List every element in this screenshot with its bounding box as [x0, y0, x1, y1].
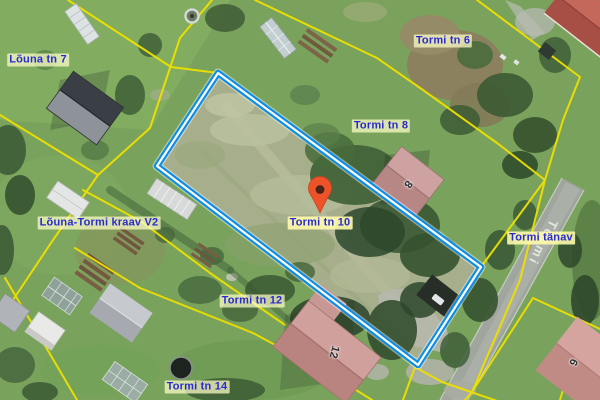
parcel-label-tormi-tn-6: Tormi tn 6	[414, 35, 472, 48]
pond	[170, 357, 192, 379]
parcel-label-tormi-tn-10: Tormi tn 10	[288, 217, 353, 230]
parcel-label-tormi-tn-14: Tormi tn 14	[165, 381, 230, 394]
parcel-label-tormi-tn-12: Tormi tn 12	[220, 295, 285, 308]
aerial-map-view[interactable]: Lõuna tn 7 Tormi tn 6 Tormi tn 8 Lõuna-T…	[0, 0, 600, 400]
aerial-map-canvas[interactable]	[0, 0, 600, 400]
street-label-tormi-tanav: Tormi tänav	[507, 232, 575, 245]
parcel-label-louna-tormi-kraav: Lõuna-Tormi kraav V2	[38, 217, 161, 230]
location-pin-icon[interactable]	[305, 174, 335, 214]
parcel-label-tormi-tn-8: Tormi tn 8	[352, 120, 410, 133]
well	[186, 10, 199, 23]
parcel-label-louna-tn-7: Lõuna tn 7	[7, 54, 69, 67]
